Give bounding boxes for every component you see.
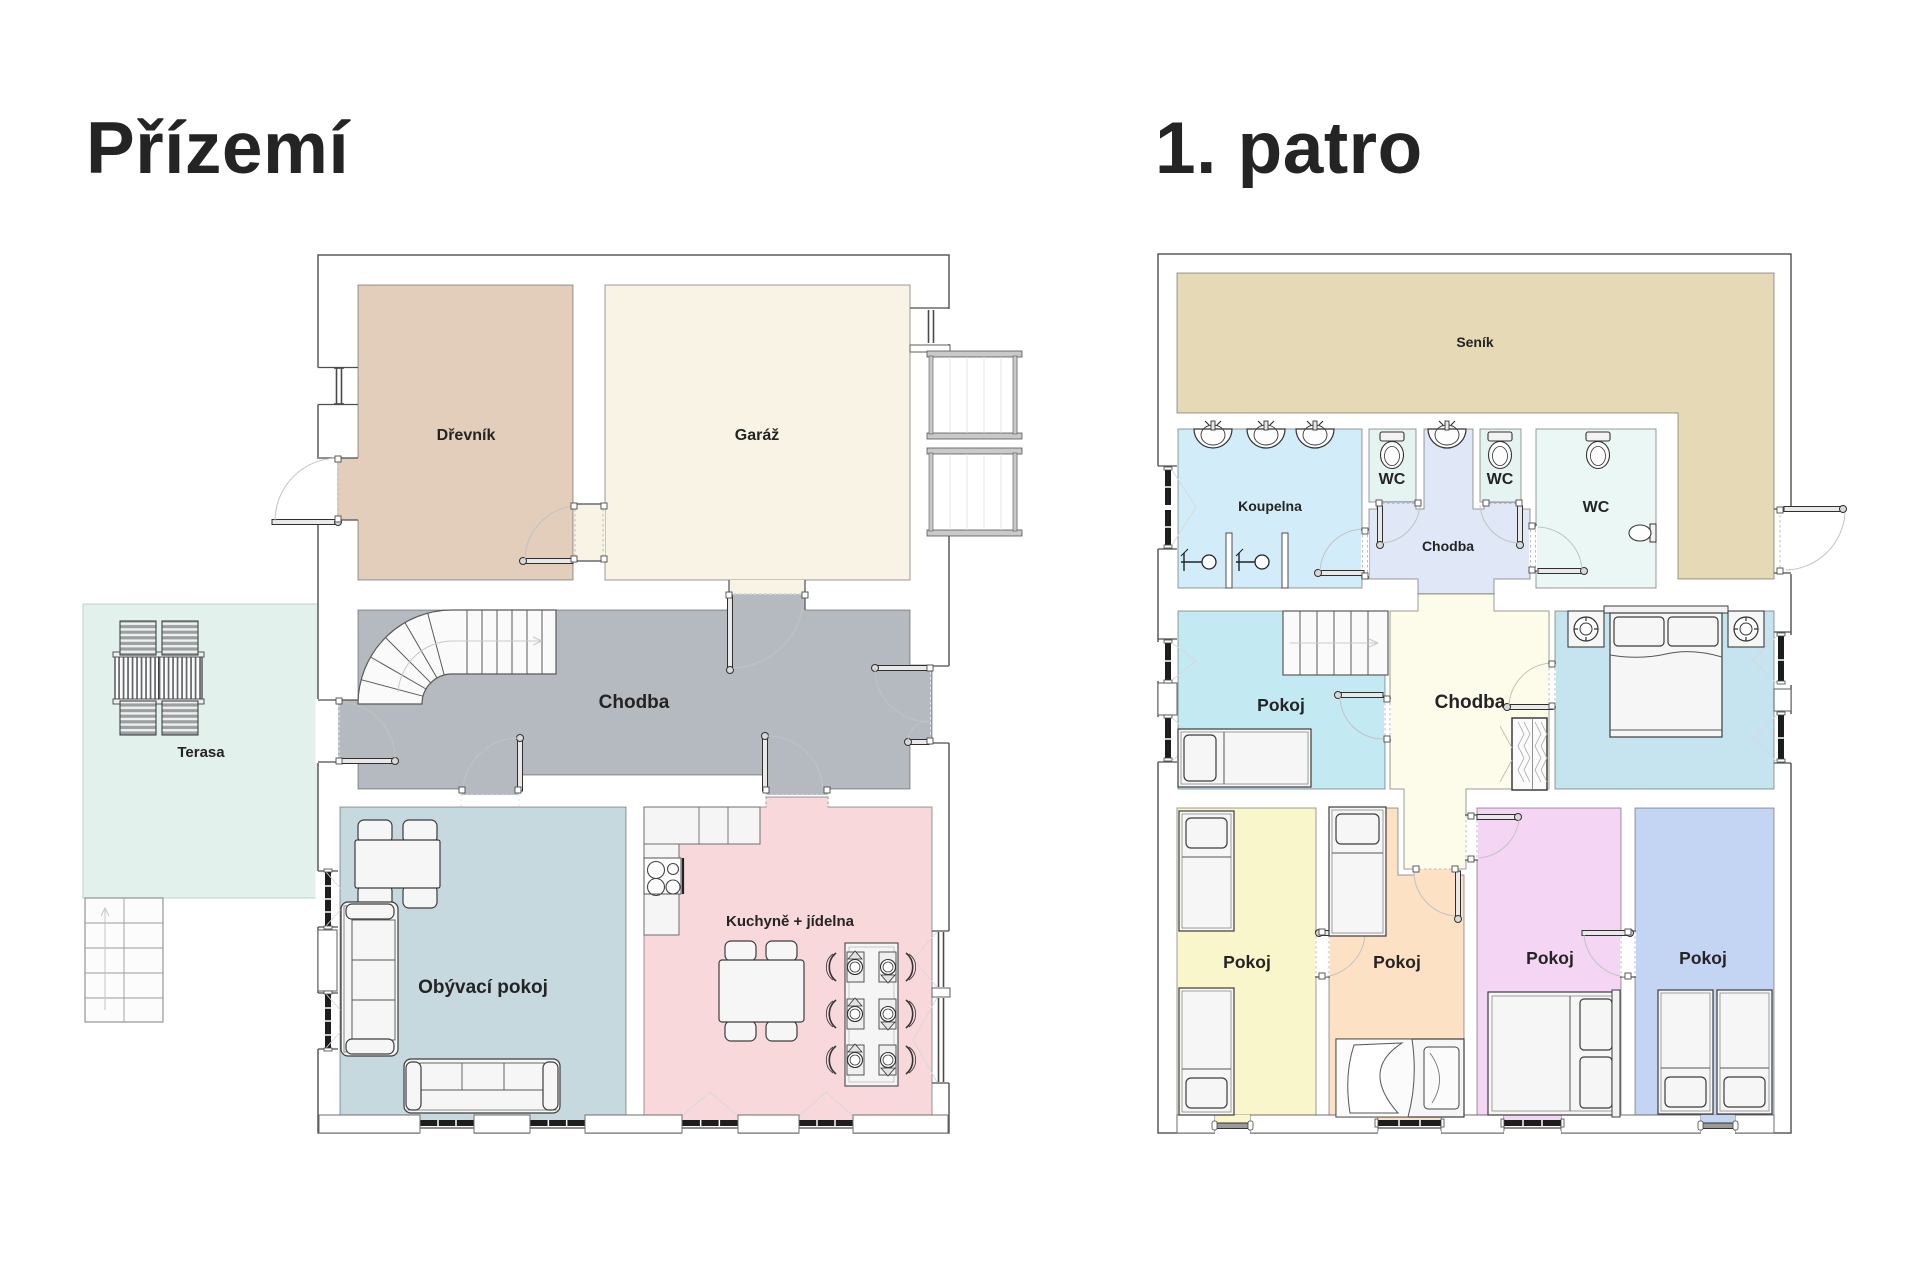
svg-text:Terasa: Terasa	[177, 744, 225, 761]
svg-text:Pokoj: Pokoj	[1526, 948, 1574, 968]
svg-text:Garáž: Garáž	[735, 427, 779, 444]
svg-text:Koupelna: Koupelna	[1238, 498, 1302, 514]
svg-text:WC: WC	[1379, 471, 1406, 488]
svg-text:1. patro: 1. patro	[1155, 108, 1423, 189]
svg-text:Chodba: Chodba	[1435, 692, 1506, 713]
svg-text:Kuchyně + jídelna: Kuchyně + jídelna	[726, 913, 855, 930]
svg-text:Dřevník: Dřevník	[437, 427, 496, 444]
svg-text:WC: WC	[1583, 499, 1610, 516]
svg-text:Obývací pokoj: Obývací pokoj	[418, 977, 548, 998]
svg-text:Pokoj: Pokoj	[1373, 952, 1421, 972]
svg-text:Přízemí: Přízemí	[86, 108, 351, 189]
svg-text:WC: WC	[1487, 471, 1514, 488]
svg-text:Pokoj: Pokoj	[1257, 695, 1305, 715]
svg-text:Pokoj: Pokoj	[1223, 952, 1271, 972]
svg-text:Seník: Seník	[1456, 334, 1494, 350]
svg-text:Chodba: Chodba	[599, 692, 670, 713]
svg-text:Pokoj: Pokoj	[1679, 948, 1727, 968]
svg-text:Chodba: Chodba	[1422, 538, 1474, 554]
